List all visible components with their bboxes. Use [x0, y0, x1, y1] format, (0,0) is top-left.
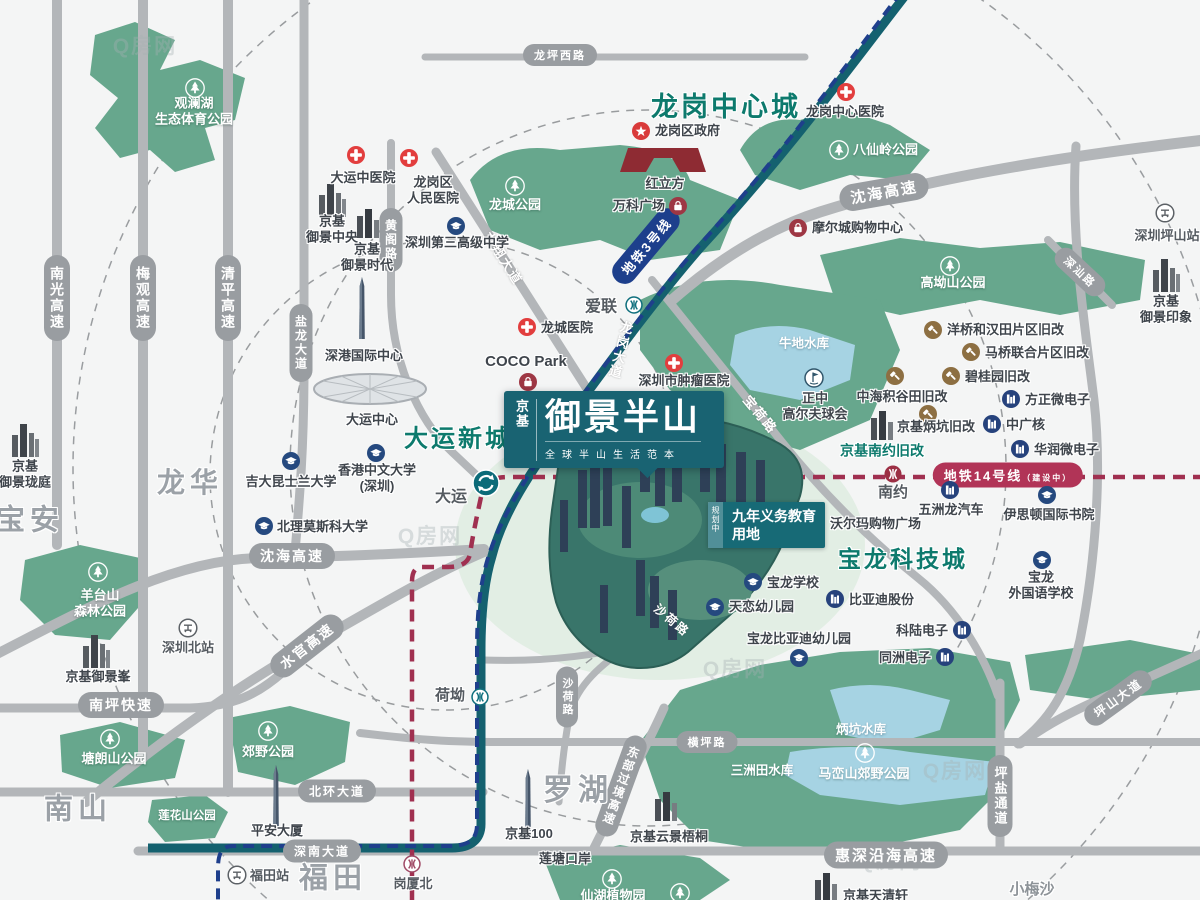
- label-line: 宝龙比亚迪幼儿园: [747, 631, 851, 647]
- watermark: Q房网: [703, 653, 767, 683]
- landmark-label: 京基御景峯: [65, 669, 130, 685]
- label-line: 科陆电子: [896, 623, 948, 639]
- label-line: 伊思顿国际书院: [1003, 507, 1094, 523]
- poi-label: 正中高尔夫球会: [782, 390, 847, 421]
- poi-label: 中海积谷田旧改: [856, 389, 947, 405]
- district-label: 罗湖: [543, 773, 613, 809]
- station-label: 大运: [435, 487, 467, 506]
- label-line: 香港中文大学: [338, 462, 416, 478]
- watermark: Q房网: [113, 30, 177, 60]
- poi-label: 五洲龙汽车: [918, 502, 983, 518]
- park-tree-icon: [88, 562, 108, 582]
- label-line: 红立方: [645, 176, 684, 192]
- label-line: 大运中心: [346, 412, 398, 428]
- road-label: 龙坪西路: [523, 44, 597, 66]
- label-line: 郊野公园: [242, 744, 294, 760]
- label-line: 深圳第三高级中学: [405, 235, 509, 251]
- label-line: 京基: [0, 458, 51, 474]
- school-icon: [282, 452, 301, 471]
- label-line: 龙岗中心医院: [806, 104, 884, 120]
- road-label: 南光高速: [44, 255, 70, 341]
- label-line: 方正微电子: [1025, 392, 1090, 408]
- project-banner: 京基 御景半山 全球半山生活范本: [504, 391, 724, 468]
- cross-icon: [400, 149, 419, 168]
- label-line: 马桥联合片区旧改: [985, 345, 1089, 361]
- station-label: 岗厦北: [393, 876, 432, 892]
- label-line: 万科广场: [613, 198, 665, 214]
- label-line: 同洲电子: [879, 650, 931, 666]
- stadium-icon: [311, 370, 429, 408]
- label-line: 龙城公园: [489, 197, 541, 213]
- label-line: 人民医院: [407, 190, 459, 206]
- landmark-label: 京基100: [505, 826, 553, 842]
- station-label: 南约: [878, 484, 908, 502]
- poi-label: 万科广场: [613, 198, 665, 214]
- water-label: 炳坑水库: [836, 723, 886, 738]
- school-icon: [1033, 551, 1052, 570]
- park-tree-icon: [602, 869, 622, 889]
- label-line: 京基御景峯: [65, 669, 130, 685]
- school-icon: [255, 517, 274, 536]
- road-label: 清平高速: [215, 255, 241, 341]
- watermark: Q房网: [398, 520, 462, 550]
- education-land-line1: 九年义务教育: [732, 507, 816, 525]
- school-icon: [447, 217, 466, 236]
- poi-label: COCO Park: [485, 353, 567, 371]
- redev-icon: [924, 321, 943, 340]
- interchange-icon: [472, 469, 500, 497]
- factory-icon: [1011, 440, 1030, 459]
- road-label: 沙荷路: [556, 667, 578, 728]
- label-line: (深圳): [338, 478, 416, 494]
- label-line: 京基: [341, 241, 393, 257]
- redev-icon: [962, 343, 981, 362]
- poi-label: 京基炳坑旧改: [897, 419, 975, 435]
- label-line: 京基云景梧桐: [630, 829, 708, 845]
- park-label: 观澜湖生态体育公园: [155, 95, 233, 126]
- label-line: 京基: [1140, 293, 1192, 309]
- poi-label: 吉大昆士兰大学: [245, 474, 336, 490]
- label-line: 八仙岭公园: [853, 142, 918, 158]
- factory-icon: [826, 590, 845, 609]
- water-label: 三洲田水库: [731, 764, 794, 779]
- landmark-label: 京基云景梧桐: [630, 829, 708, 845]
- poi-label: 天恋幼儿园: [729, 599, 794, 615]
- landmark-label: 大运中心: [346, 412, 398, 428]
- buildings-icon: [522, 769, 534, 831]
- label-line: 羊台山: [74, 587, 126, 603]
- park-tree-icon: [258, 721, 278, 741]
- education-land-status: 规划中: [708, 502, 723, 548]
- cross-icon: [347, 146, 366, 165]
- road-label: 梅观高速: [130, 255, 156, 341]
- poi-label: 比亚迪股份: [849, 592, 914, 608]
- label-line: 马峦山郊野公园: [818, 766, 909, 782]
- district-label: 龙岗中心城: [651, 91, 801, 123]
- landmark-label: 京基天清轩: [843, 888, 908, 900]
- cross-icon: [518, 318, 537, 337]
- mall-icon: [669, 197, 688, 216]
- label-line: 洋桥和汉田片区旧改: [947, 322, 1064, 338]
- label-line: 龙岗区: [407, 174, 459, 190]
- buildings-icon: [81, 630, 111, 668]
- label-line: 深港国际中心: [325, 348, 403, 364]
- metro-station-icon: [884, 465, 902, 483]
- landmark-label: 京基御景印象: [1140, 293, 1192, 324]
- school-icon: [367, 444, 386, 463]
- road-label: 横坪路: [677, 731, 738, 753]
- label-line: 莲花山公园: [158, 810, 216, 824]
- label-line: 高坳山公园: [920, 275, 985, 291]
- label-line: 京基炳坑旧改: [897, 419, 975, 435]
- station-label: 深圳北站: [162, 640, 214, 656]
- station-label: 深圳坪山站: [1134, 228, 1199, 244]
- label-line: 御景印象: [1140, 309, 1192, 325]
- road-label: 沈海高速: [249, 543, 335, 569]
- school-icon: [706, 598, 725, 617]
- label-line: 宝龙: [1008, 569, 1073, 585]
- label-line: 观澜湖: [155, 95, 233, 111]
- landmark-label: 红立方: [645, 176, 684, 192]
- poi-label: 同洲电子: [879, 650, 931, 666]
- cross-icon: [665, 354, 684, 373]
- school-icon: [744, 573, 763, 592]
- buildings-icon: [355, 206, 381, 238]
- road-label: 南坪快速: [78, 692, 164, 718]
- metro-station-icon: [625, 296, 643, 314]
- school-icon: [790, 649, 809, 668]
- poi-label: 龙岗中心医院: [806, 104, 884, 120]
- label-line: 五洲龙汽车: [918, 502, 983, 518]
- metro-station-icon: [403, 855, 421, 873]
- label-line: 天恋幼儿园: [729, 599, 794, 615]
- factory-icon: [1002, 390, 1021, 409]
- rail-station-icon: [227, 865, 247, 885]
- poi-label: 方正微电子: [1025, 392, 1090, 408]
- label-line: 外国语学校: [1008, 585, 1073, 601]
- poi-label: 伊思顿国际书院: [1003, 507, 1094, 523]
- road-label: 深南大道: [283, 840, 361, 863]
- label-line: 北理莫斯科大学: [277, 519, 368, 535]
- label-line: 龙岗区政府: [655, 123, 720, 139]
- district-label: 宝安: [0, 504, 64, 539]
- park-tree-icon: [829, 140, 849, 160]
- poi-label: 马桥联合片区旧改: [985, 345, 1089, 361]
- road-label: 惠深沿海高速: [824, 842, 948, 869]
- label-line: 比亚迪股份: [849, 592, 914, 608]
- label-line: 碧桂园旧改: [965, 369, 1030, 385]
- park-tree-icon: [940, 256, 960, 276]
- label-line: 摩尔城购物中心: [812, 220, 903, 236]
- label-line: 御景时代: [341, 257, 393, 273]
- water-label: 牛地水库: [779, 337, 829, 352]
- park-label: 郊野公园: [242, 744, 294, 760]
- label-line: 吉大昆士兰大学: [245, 474, 336, 490]
- label-line: 京基天清轩: [843, 888, 908, 900]
- buildings-icon: [813, 870, 839, 900]
- landmark-label: 京基御景珑庭: [0, 458, 51, 489]
- station-label: 福田站: [250, 868, 289, 884]
- school-icon: [1038, 486, 1057, 505]
- mall-icon: [789, 219, 808, 238]
- poi-label: 中广核: [1006, 417, 1045, 433]
- label-line: 森林公园: [74, 603, 126, 619]
- label-line: 中广核: [1006, 417, 1045, 433]
- golf-icon: [804, 368, 824, 388]
- station-label: 荷坳: [435, 687, 465, 705]
- label-line: 中海积谷田旧改: [856, 389, 947, 405]
- poi-label: 碧桂园旧改: [965, 369, 1030, 385]
- watermark: Q房网: [923, 755, 987, 785]
- label-line: 塘朗山公园: [81, 751, 146, 767]
- poi-label: 摩尔城购物中心: [812, 220, 903, 236]
- poi-label: 宝龙学校: [767, 575, 819, 591]
- place-label: 小梅沙: [1009, 881, 1054, 899]
- poi-label: 深圳市肿瘤医院: [638, 373, 729, 389]
- park-tree-icon: [100, 729, 120, 749]
- label-line: 京基: [306, 213, 358, 229]
- label-line: 御景珑庭: [0, 474, 51, 490]
- poi-label: 香港中文大学(深圳): [338, 462, 416, 493]
- landmark-label: 深港国际中心: [325, 348, 403, 364]
- education-land-badge: 规划中 九年义务教育 用地: [708, 502, 825, 548]
- rail-station-icon: [178, 618, 198, 638]
- project-title: 御景半山: [545, 399, 701, 437]
- district-label: 宝龙科技城: [838, 546, 968, 574]
- label-line: 宝龙学校: [767, 575, 819, 591]
- park-label: 马峦山郊野公园: [818, 766, 909, 782]
- metro-station-icon: [471, 688, 489, 706]
- label-line: 平安大厦: [251, 823, 303, 839]
- factory-icon: [936, 648, 955, 667]
- cross-icon: [837, 83, 856, 102]
- buildings-icon: [869, 408, 895, 440]
- park-tree-icon: [505, 176, 525, 196]
- poi-label: 沃尔玛购物广场: [830, 516, 921, 532]
- factory-icon: [953, 621, 972, 640]
- label-line: 仙湖植物园: [580, 888, 645, 900]
- poi-label: 龙岗区政府: [655, 123, 720, 139]
- label-line: 京基南约旧改: [840, 443, 924, 460]
- landmark-label: 平安大厦: [251, 823, 303, 839]
- redev-icon: [942, 367, 961, 386]
- park-label: 莲花山公园: [158, 810, 216, 824]
- park-label: 八仙岭公园: [853, 142, 918, 158]
- park-label: 羊台山森林公园: [74, 587, 126, 618]
- label-line: 大运中医院: [330, 170, 395, 186]
- poi-label: 龙城医院: [541, 320, 593, 336]
- park-tree-icon: [670, 883, 690, 900]
- buildings-icon: [653, 789, 679, 821]
- label-line: 龙城医院: [541, 320, 593, 336]
- mall-icon: [519, 373, 538, 392]
- district-label: 大运新城: [404, 426, 512, 455]
- label-line: 沃尔玛购物广场: [830, 516, 921, 532]
- label-line: 深圳市肿瘤医院: [638, 373, 729, 389]
- park-tree-icon: [855, 743, 875, 763]
- project-subtitle: 全球半山生活范本: [545, 441, 701, 461]
- park-label: 仙湖植物园: [580, 888, 645, 900]
- poi-label: 宝龙比亚迪幼儿园: [747, 631, 851, 647]
- park-label: 高坳山公园: [920, 275, 985, 291]
- poi-label: 科陆电子: [896, 623, 948, 639]
- poi-label: 宝龙外国语学校: [1008, 569, 1073, 600]
- poi-label: 华润微电子: [1034, 442, 1099, 458]
- buildings-icon: [1151, 254, 1181, 292]
- road-label: 坪盐通道: [988, 755, 1013, 837]
- buildings-icon: [270, 765, 282, 827]
- park-label: 塘朗山公园: [81, 751, 146, 767]
- redev-icon: [886, 367, 905, 386]
- buildings-icon: [356, 277, 368, 339]
- poi-label: 北理莫斯科大学: [277, 519, 368, 535]
- real-estate-location-map: 京基 御景半山 全球半山生活范本 规划中 九年义务教育 用地 Q房网Q房网Q房网…: [0, 0, 1200, 900]
- district-label: 南山: [44, 793, 112, 828]
- buildings-icon: [10, 419, 40, 457]
- label-line: 生态体育公园: [155, 111, 233, 127]
- station-label: 爱联: [585, 297, 617, 316]
- landmark-label: 京基南约旧改: [840, 443, 924, 460]
- factory-icon: [983, 415, 1002, 434]
- poi-label: 洋桥和汉田片区旧改: [947, 322, 1064, 338]
- education-land-line2: 用地: [732, 525, 816, 543]
- park-label: 龙城公园: [489, 197, 541, 213]
- poi-label: 龙岗区人民医院: [407, 174, 459, 205]
- label-line: 京基100: [505, 826, 553, 842]
- red-cube-icon: [619, 147, 707, 173]
- place-label: 莲塘口岸: [539, 851, 591, 867]
- landmark-label: 京基御景中央: [306, 213, 358, 244]
- poi-label: 大运中医院: [330, 170, 395, 186]
- district-label: 福田: [299, 862, 367, 897]
- poi-label: 深圳第三高级中学: [405, 235, 509, 251]
- label-line: 正中: [782, 390, 847, 406]
- star-icon: [632, 122, 651, 141]
- label-line: 高尔夫球会: [782, 406, 847, 422]
- rail-station-icon: [1155, 203, 1175, 223]
- landmark-label: 京基御景时代: [341, 241, 393, 272]
- line14-status: （建设中）: [1022, 474, 1072, 483]
- district-label: 龙华: [157, 466, 223, 500]
- label-line: COCO Park: [485, 353, 567, 371]
- road-label: 盐龙大道: [290, 304, 313, 382]
- project-brand: 京基: [512, 399, 537, 461]
- road-label: 北环大道: [298, 780, 376, 803]
- label-line: 华润微电子: [1034, 442, 1099, 458]
- factory-icon: [941, 481, 960, 500]
